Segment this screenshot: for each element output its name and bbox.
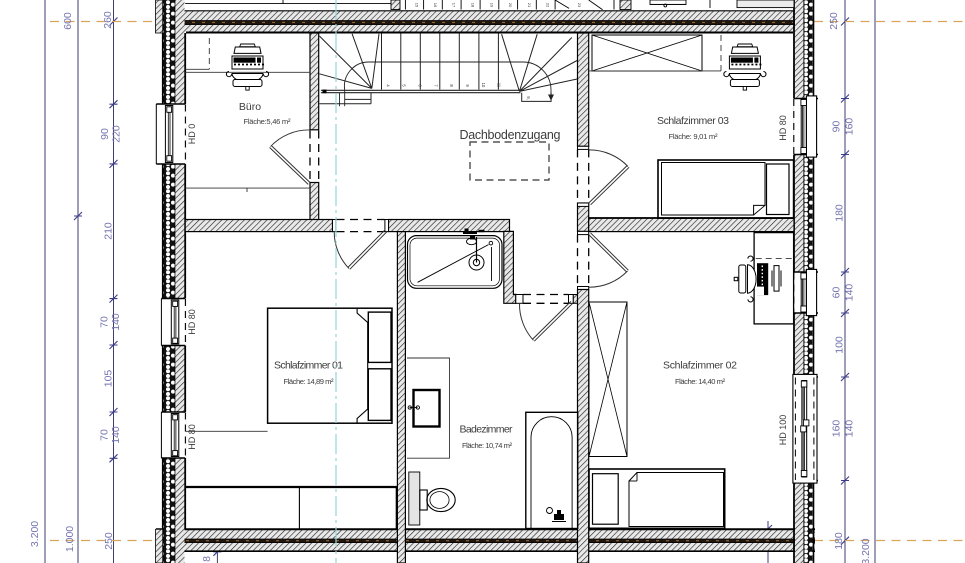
svg-text:8: 8: [201, 556, 213, 562]
svg-text:140: 140: [844, 420, 856, 438]
svg-text:20: 20: [508, 3, 513, 8]
svg-text:Fläche: 10,74 m²: Fläche: 10,74 m²: [462, 441, 512, 450]
svg-text:60: 60: [831, 287, 843, 299]
svg-text:23: 23: [577, 3, 582, 8]
svg-text:Badezimmer: Badezimmer: [460, 424, 514, 436]
svg-text:600: 600: [62, 12, 74, 30]
svg-text:250: 250: [828, 12, 840, 30]
svg-text:Fläche: 9,01 m²: Fläche: 9,01 m²: [669, 132, 718, 141]
svg-text:Fläche: 14,40 m²: Fläche: 14,40 m²: [675, 377, 725, 386]
svg-text:HD 80: HD 80: [187, 309, 197, 335]
svg-text:HD 100: HD 100: [778, 415, 788, 446]
svg-text:180: 180: [834, 204, 846, 222]
svg-text:70: 70: [99, 429, 111, 441]
svg-text:21: 21: [527, 3, 532, 8]
svg-text:140: 140: [110, 426, 122, 444]
svg-text:250: 250: [103, 532, 115, 550]
svg-text:160: 160: [831, 420, 843, 438]
svg-text:10: 10: [481, 83, 486, 88]
svg-text:9,: 9,: [526, 96, 531, 100]
svg-text:11: 11: [497, 83, 502, 88]
svg-text:Fläche:5,46 m²: Fläche:5,46 m²: [244, 117, 291, 126]
svg-text:70: 70: [99, 316, 111, 328]
svg-text:180: 180: [833, 532, 845, 550]
svg-text:100: 100: [834, 336, 846, 354]
svg-text:105: 105: [103, 370, 115, 388]
svg-text:19: 19: [490, 3, 495, 8]
svg-text:Fläche: 14,89 m²: Fläche: 14,89 m²: [284, 377, 334, 386]
svg-text:160: 160: [844, 118, 856, 136]
svg-text:140: 140: [110, 313, 122, 331]
svg-text:Dachbodenzugang: Dachbodenzugang: [460, 128, 561, 142]
svg-text:Schlafzimmer 02: Schlafzimmer 02: [663, 360, 737, 372]
svg-text:17: 17: [452, 3, 457, 8]
svg-text:HD 0: HD 0: [187, 124, 197, 145]
svg-text:18: 18: [471, 3, 476, 8]
svg-text:90: 90: [99, 128, 111, 140]
svg-text:3.200: 3.200: [29, 521, 41, 547]
svg-text:210: 210: [103, 222, 115, 240]
svg-text:90: 90: [831, 121, 843, 133]
svg-text:HD 80: HD 80: [187, 424, 197, 450]
svg-text:HD 80: HD 80: [778, 115, 788, 141]
svg-text:15: 15: [415, 3, 420, 8]
svg-text:22: 22: [546, 3, 551, 8]
svg-text:260: 260: [102, 11, 114, 29]
svg-text:Schlafzimmer 03: Schlafzimmer 03: [657, 115, 729, 127]
svg-text:16: 16: [433, 3, 438, 8]
svg-text:140: 140: [844, 284, 856, 302]
svg-text:Büro: Büro: [239, 101, 261, 113]
svg-text:220: 220: [111, 125, 123, 143]
svg-text:3.200: 3.200: [860, 538, 872, 563]
svg-text:1.000: 1.000: [64, 526, 76, 552]
svg-text:Schlafzimmer 01: Schlafzimmer 01: [274, 360, 343, 372]
